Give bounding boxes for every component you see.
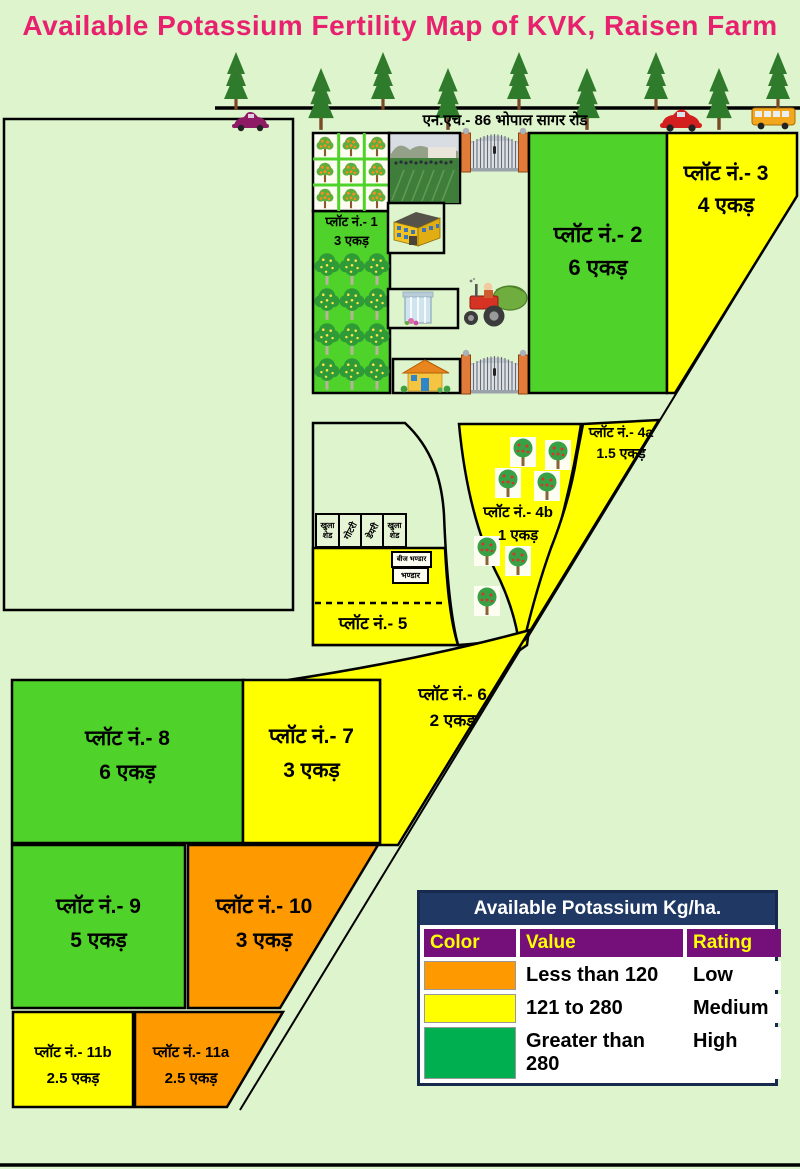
house-icon xyxy=(393,359,460,393)
shed-dairy: डेयरी xyxy=(360,513,384,548)
legend-rating-medium: Medium xyxy=(687,994,781,1023)
road-label: एन.एच.- 86 भोपाल सागर रोड xyxy=(390,110,620,130)
school-bus-icon xyxy=(752,108,795,129)
greenhouse-icon xyxy=(388,289,458,328)
legend-rating-high: High xyxy=(687,1027,781,1079)
plot-9-label: प्लॉट नं.- 95 एकड़ xyxy=(12,890,185,957)
shed-open-1: खुला शेड xyxy=(315,513,340,548)
legend-swatch-medium xyxy=(424,994,516,1023)
plot-3-label: प्लॉट नं.- 34 एकड़ xyxy=(662,158,790,221)
tractor-icon xyxy=(464,278,527,327)
plot-4b-label: प्लॉट नं.- 4b1 एकड़ xyxy=(468,502,568,547)
seed-store: बीज भण्डार xyxy=(391,551,432,568)
legend-col-color: Color xyxy=(424,929,516,957)
legend-col-value: Value xyxy=(520,929,683,957)
fertility-map: Available Potassium Fertility Map of KVK… xyxy=(0,0,800,1169)
plot-7-label: प्लॉट नं.- 73 एकड़ xyxy=(243,720,380,787)
office-building-icon xyxy=(388,203,444,253)
legend-value-low: Less than 120 xyxy=(520,961,683,990)
field-photo xyxy=(389,133,460,203)
plot-1-region xyxy=(313,133,390,393)
orange-orchard-icons xyxy=(317,137,386,208)
plot-11a-label: प्लॉट नं.- 11a2.5 एकड़ xyxy=(133,1040,249,1091)
plot-11b-label: प्लॉट नं.- 11b2.5 एकड़ xyxy=(13,1040,133,1091)
legend-swatch-high xyxy=(424,1027,516,1079)
plot-4a-label: प्लॉट नं.- 4a1.5 एकड़ xyxy=(570,422,672,464)
plot-2-label: प्लॉट नं.- 26 एकड़ xyxy=(529,218,667,284)
plot-6-label: प्लॉट नं.- 62 एकड़ xyxy=(380,682,525,733)
page-title: Available Potassium Fertility Map of KVK… xyxy=(0,10,800,42)
red-car-icon xyxy=(660,110,702,132)
plot-10-label: प्लॉट नं.- 103 एकड़ xyxy=(184,890,344,957)
shed-open-2: खुला शेड xyxy=(382,513,407,548)
left-compound xyxy=(4,119,293,610)
legend-value-high: Greater than 280 xyxy=(520,1027,683,1079)
entrance-gate-bottom-icon xyxy=(462,350,528,394)
legend-rating-low: Low xyxy=(687,961,781,990)
legend-table: Available Potassium Kg/ha. Color Value R… xyxy=(417,890,778,1086)
legend-title: Available Potassium Kg/ha. xyxy=(420,893,775,925)
legend-col-rating: Rating xyxy=(687,929,781,957)
shed-goatry: गोटरी xyxy=(338,513,362,548)
legend-value-medium: 121 to 280 xyxy=(520,994,683,1023)
plot-5-label: प्लॉट नं.- 5 xyxy=(318,611,428,637)
plot-1-label: प्लॉट नं.- 13 एकड़ xyxy=(313,213,390,251)
store: भण्डार xyxy=(392,567,429,584)
legend-swatch-low xyxy=(424,961,516,990)
plot-8-label: प्लॉट नं.- 86 एकड़ xyxy=(12,722,243,789)
entrance-gate-top-icon xyxy=(462,128,528,172)
